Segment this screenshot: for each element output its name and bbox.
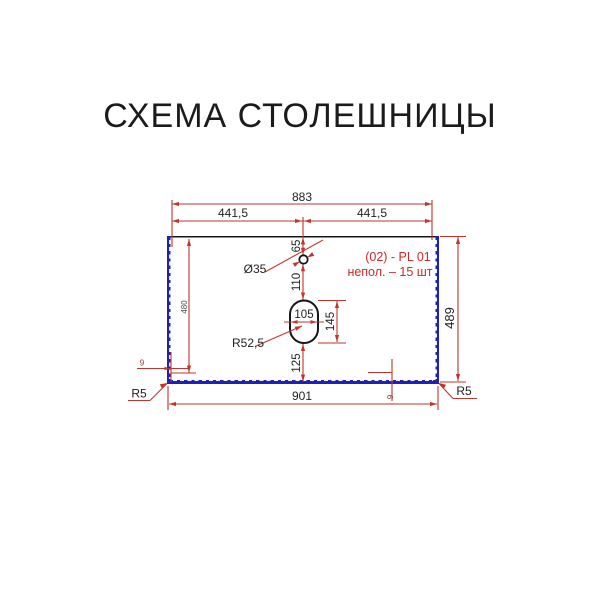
dim-half-left: 441,5 xyxy=(218,206,248,220)
round-hole-35mm xyxy=(299,255,307,263)
dim-edge-offset-left: 9 xyxy=(140,359,145,368)
dim-hole-diameter: Ø35 xyxy=(244,262,267,276)
corner-leader-right xyxy=(439,384,453,399)
dim-hole-to-cutout: 110 xyxy=(291,273,303,291)
dimension-labels: 883 441,5 441,5 65 Ø35 110 105 145 R52,5… xyxy=(131,190,472,403)
dim-half-right: 441,5 xyxy=(357,206,387,220)
part-note-line2: непол. – 15 шт xyxy=(347,265,432,279)
dim-corner-left: R5 xyxy=(131,387,147,401)
dim-cutout-width: 105 xyxy=(294,309,313,321)
dim-cutout-bottom: 125 xyxy=(291,353,303,372)
dim-cutout-radius: R52,5 xyxy=(232,336,264,350)
dim-right-height: 489 xyxy=(442,307,457,329)
dim-bottom-width: 901 xyxy=(292,389,312,403)
dim-hole-offset: 65 xyxy=(291,240,303,253)
dim-left-height: 480 xyxy=(180,300,189,314)
part-note-line1: (02) - PL 01 xyxy=(365,250,431,264)
countertop-drawing: 883 441,5 441,5 65 Ø35 110 105 145 R52,5… xyxy=(0,0,600,600)
dim-edge-offset-bottom: 9 xyxy=(386,394,395,399)
dim-total-width: 883 xyxy=(292,190,312,204)
dim-corner-right: R5 xyxy=(456,384,472,398)
dim-cutout-height: 145 xyxy=(325,312,337,331)
part-note: (02) - PL 01 непол. – 15 шт xyxy=(347,250,432,279)
schematic-page: СХЕМА СТОЛЕШНИЦЫ xyxy=(0,0,600,600)
